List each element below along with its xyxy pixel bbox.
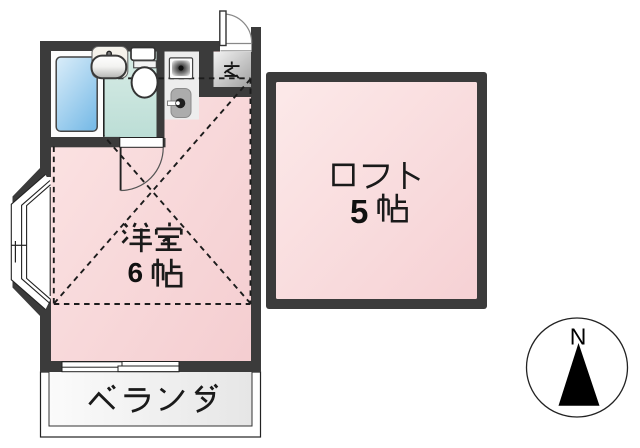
svg-text:6: 6	[128, 257, 144, 288]
svg-text:N: N	[570, 324, 587, 350]
svg-text:5: 5	[350, 193, 368, 230]
